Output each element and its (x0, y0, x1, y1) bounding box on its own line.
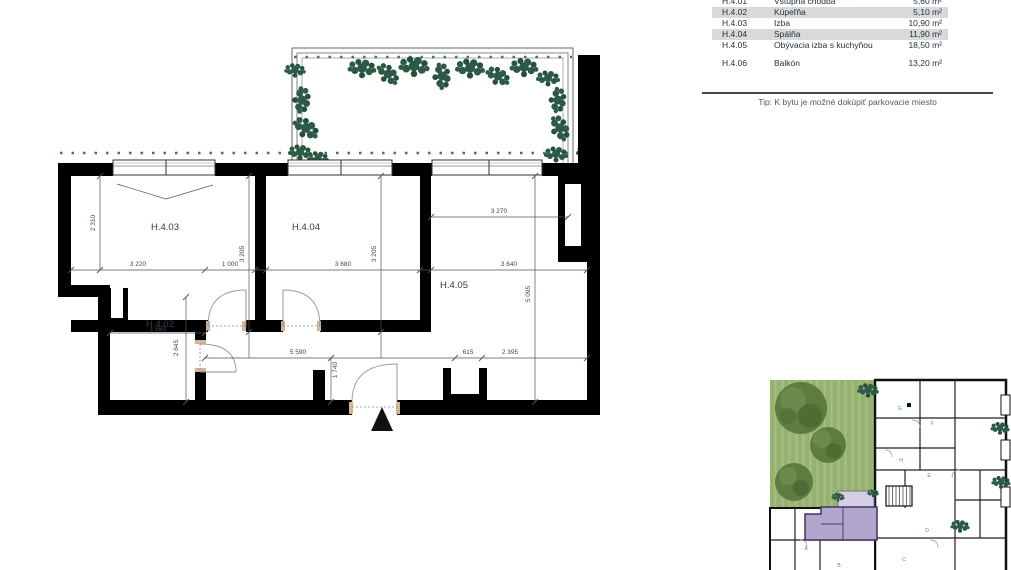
room-label-h402: H.4.02 (146, 319, 174, 330)
balcony-foliage (284, 56, 600, 165)
unit-letter-g: G (898, 406, 902, 412)
room-label-h405: H.4.05 (440, 280, 468, 291)
dim-3640: 3 640 (501, 261, 518, 268)
unit-letter-d: D (925, 528, 929, 534)
door-h404-arc (283, 290, 320, 326)
dim-3220: 3 220 (130, 261, 147, 268)
dimension-labels: 3 220 1 000 3 680 3 640 3 270 5 590 615 … (90, 208, 532, 378)
door-entrance-arc (352, 364, 397, 402)
tree-2 (810, 427, 846, 463)
door-opening-dashes (200, 326, 397, 407)
dim-2645: 2 645 (173, 339, 180, 356)
window-swing-line (117, 184, 213, 199)
building-edge-balconies (1001, 395, 1010, 507)
dim-5590: 5 590 (290, 349, 307, 356)
dim-2310: 2 310 (90, 214, 97, 231)
page: H.4.01 Vstupná chodba 5,60 m² H.4.02 Kúp… (0, 0, 1011, 570)
walls (58, 55, 600, 415)
window-h403 (113, 160, 215, 175)
unit-letter-h: H (899, 458, 903, 464)
door-arcs (200, 290, 397, 402)
window-h405 (432, 160, 542, 175)
entrance-arrow (371, 407, 393, 431)
unit-letter-f: F (930, 421, 933, 427)
dim-3680: 3 680 (335, 261, 352, 268)
tree-1 (775, 382, 827, 434)
unit-marker-dot (907, 403, 911, 407)
wall-niches (111, 184, 581, 394)
building-main-outline (875, 380, 1006, 570)
window-h404 (288, 160, 392, 175)
tree-3 (775, 463, 813, 501)
dim-615: 615 (463, 349, 474, 356)
room-label-h403: H.4.03 (151, 222, 179, 233)
dim-2395: 2 395 (502, 349, 519, 356)
room-labels: H.4.03 H.4.04 H.4.05 H.4.02 (146, 222, 468, 330)
dim-3270: 3 270 (491, 208, 508, 215)
room-label-h404: H.4.04 (292, 222, 320, 233)
dim-3205b: 3 205 (371, 245, 378, 262)
dim-1000: 1 000 (222, 261, 239, 268)
dim-1740: 1 740 (332, 361, 339, 378)
floor-plan-drawing: 3 220 1 000 3 680 3 640 3 270 5 590 615 … (0, 0, 1011, 570)
dim-3205a: 3 205 (239, 245, 246, 262)
unit-letter-c: C (902, 557, 906, 563)
dimension-lines (68, 173, 590, 405)
site-plan: G F H E D A B C (770, 380, 1011, 570)
dim-5095: 5 095 (525, 285, 532, 302)
dimension-ticks (68, 173, 590, 405)
door-h403-arc (208, 290, 246, 326)
stairwell (886, 486, 912, 506)
